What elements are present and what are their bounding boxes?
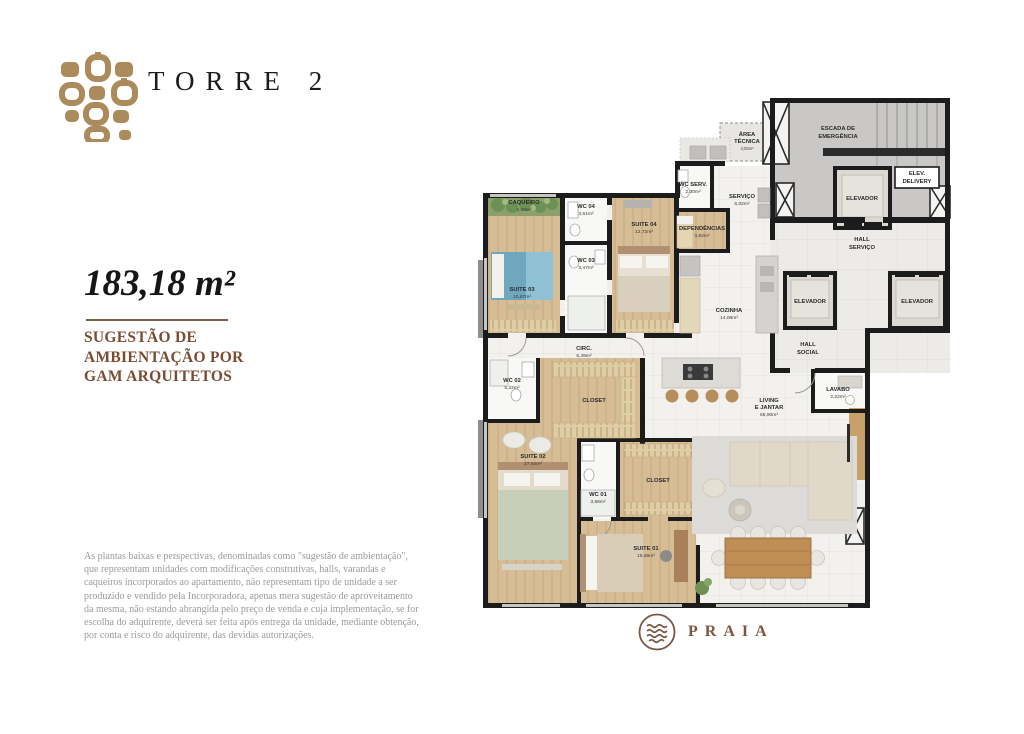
room-label-elevador-right: ELEVADOR [901,299,934,305]
room-label-closet-suite02: CLOSET [582,398,606,404]
legal-disclaimer-text: As plantas baixas e perspectivas, denomi… [84,550,420,642]
room-label-suite04: SUITE 04 [631,222,657,228]
subtitle-line-2: AMBIENTAÇÃO POR [84,348,244,368]
room-area-lavabo: 2,22m² [830,394,846,400]
room-label-circ: CIRC. [576,346,592,352]
room-area-wc-serv: 2,30m² [685,189,701,195]
bed-suite04 [618,246,670,312]
dresser-suite04 [624,200,652,208]
exterior-ledges [478,260,483,518]
room-label-hall-social-2: SOCIAL [797,350,819,356]
room-label-area-tecnica-2: TÉCNICA [734,137,761,145]
brand-mosaic-logo-icon [58,52,140,142]
room-label-suite03: SUITE 03 [509,287,535,293]
room-area-caqueiro: 2,60m² [516,207,532,213]
room-label-area-tecnica-1: ÁREA [739,131,756,138]
room-area-wc01: 3,58m² [590,499,606,505]
room-label-elevador-left: ELEVADOR [794,299,827,305]
room-area-suite02: 27,64m² [524,461,542,467]
subtitle-line-3: GAM ARQUITETOS [84,367,244,387]
dining-table [725,538,811,578]
room-area-wc03: 3,47m² [578,265,594,271]
room-label-wc03: WC 03 [577,258,595,264]
floorplan: CAQUEIRO 2,60m² WC 04 3,51m² SUITE 04 12… [478,90,978,624]
room-label-wc02: WC 02 [503,378,521,384]
room-area-circ: 6,49m² [576,353,592,359]
subtitle-line-1: SUGESTÃO DE [84,328,244,348]
area-underline-rule [86,319,228,321]
praia-brand-name: PRAIA [688,623,774,641]
room-label-living-2: E JANTAR [755,405,784,411]
room-area-living: 55,90m² [760,412,778,418]
room-label-dependencias: DEPENDÊNCIAS [679,224,725,232]
room-label-elev-delivery-2: DELIVERY [903,179,932,185]
room-area-dependencias: 3,84m² [694,233,710,239]
room-label-hall-servico-1: HALL [854,237,870,243]
room-area-servico: 6,02m² [734,201,750,207]
room-label-elevador-top: ELEVADOR [846,196,879,202]
room-label-servico: SERVIÇO [729,194,755,200]
room-area-wc02: 5,22m² [504,385,520,391]
room-area-suite04: 12,72m² [635,229,653,235]
room-label-hall-social-1: HALL [800,342,816,348]
room-area-area-tecnica: 4,03m² [740,146,754,151]
room-label-suite02: SUITE 02 [520,454,545,460]
room-label-closet-suite01: CLOSET [646,478,670,484]
room-label-caqueiro: CAQUEIRO [508,200,540,206]
room-area-suite01: 16,66m² [637,553,655,559]
room-label-wc01: WC 01 [589,492,607,498]
room-area-wc04: 3,51m² [578,211,594,217]
bed-dependencias [677,216,693,248]
unit-area-label: 183,18 m² [84,262,235,305]
room-label-cozinha: COZINHA [716,308,743,314]
room-label-wc-serv: WC SERV. [679,182,707,188]
tv-panel [847,424,850,462]
room-label-wc04: WC 04 [577,204,595,210]
room-area-cozinha: 14,06m² [720,315,738,321]
room-label-escada-1: ESCADA DE [821,126,855,132]
wardrobe-suite04 [616,320,674,332]
room-label-elev-delivery-1: ELEV. [909,171,926,177]
room-label-suite01: SUITE 01 [633,546,659,552]
ambientation-subtitle: SUGESTÃO DE AMBIENTAÇÃO POR GAM ARQUITET… [84,328,244,387]
room-area-suite03: 10,67m² [513,294,531,300]
wardrobe-suite03 [490,320,556,332]
room-label-escada-2: EMERGÊNCIA [818,132,858,140]
room-label-lavabo: LAVABO [826,387,850,393]
room-label-hall-servico-2: SERVIÇO [849,245,875,251]
room-label-living-1: LIVING [759,398,779,404]
page-title: TORRE 2 [148,66,333,97]
